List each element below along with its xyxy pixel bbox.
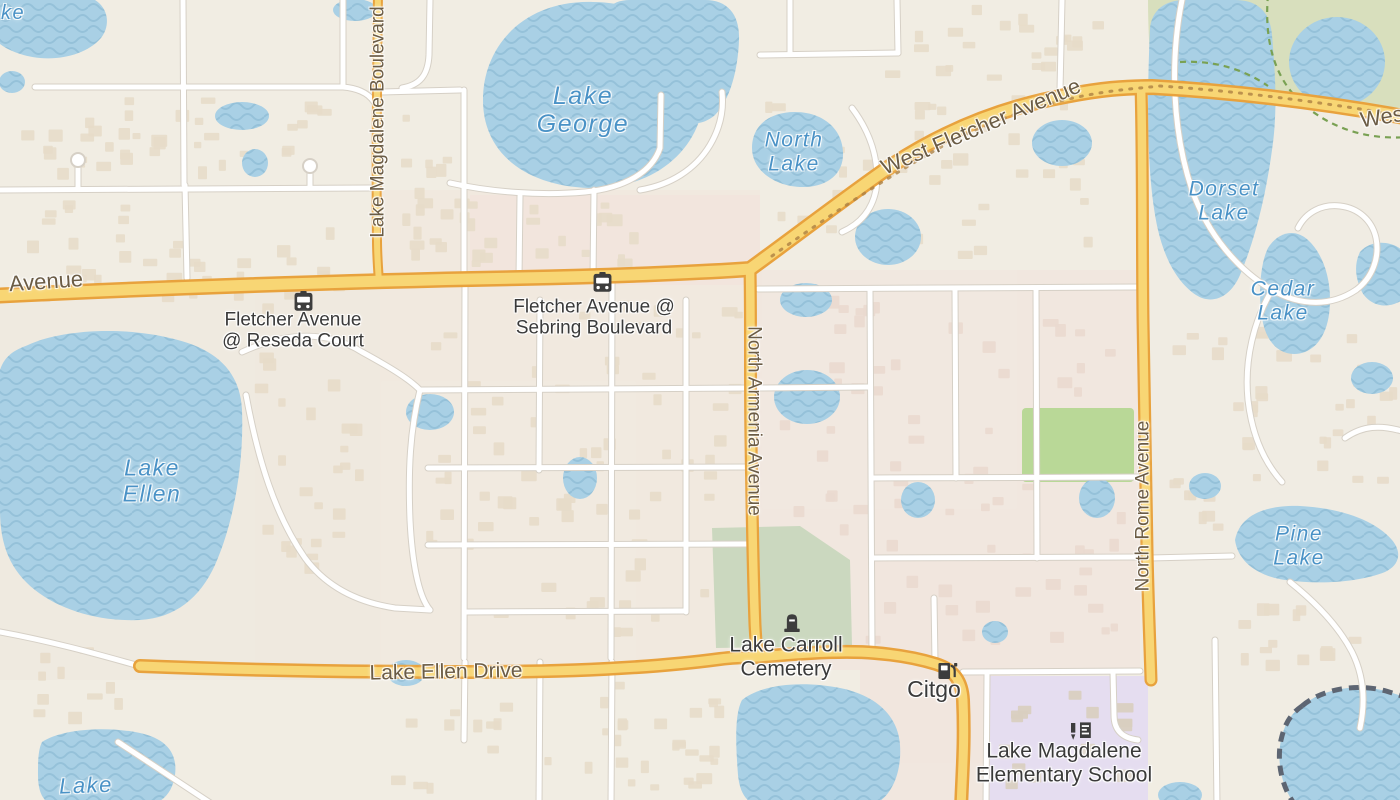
basemap-tiles	[0, 0, 1400, 800]
map-canvas[interactable]: LakeGeorge NorthLake DorsetLake CedarLak…	[0, 0, 1400, 800]
